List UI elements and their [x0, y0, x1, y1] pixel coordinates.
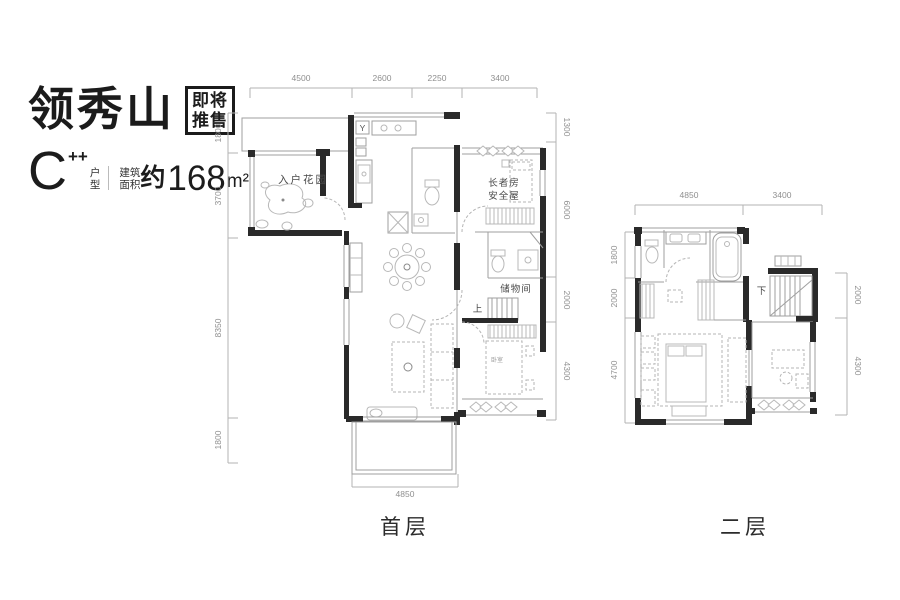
dim-label: 2250 [428, 73, 447, 83]
dim-label: 1800 [213, 430, 223, 449]
dim-label: 2000 [562, 291, 572, 310]
dim-label: 4300 [562, 362, 572, 381]
dim-label: 3400 [491, 73, 510, 83]
toilet [646, 247, 658, 263]
elder-room-label-1: 长者房 [488, 177, 520, 189]
dim-label: 4700 [609, 360, 619, 379]
wardrobe [640, 284, 654, 318]
storage-room: 储物间 [500, 283, 532, 295]
wardrobe [486, 208, 534, 224]
living-dining [344, 231, 458, 422]
floor1-dimensions-left: 1800 3700 8350 1800 [213, 113, 238, 463]
dim-label: 6000 [562, 201, 572, 220]
ac-platform [242, 118, 350, 151]
dim-label: 3700 [213, 186, 223, 205]
master-bedroom [636, 320, 752, 425]
stair-down-label: 下 [757, 286, 768, 297]
meter-symbol: Y [360, 123, 366, 133]
floor2-dimensions-left: 1800 2000 4700 [609, 232, 635, 423]
dim-label: 4850 [680, 190, 699, 200]
floor2-walls [634, 227, 752, 425]
garden-room: 入户花园 [248, 149, 345, 236]
dim-label: 3400 [773, 190, 792, 200]
floor2-name: 二层 [720, 516, 770, 539]
dining-table [395, 255, 419, 279]
door-arc [666, 258, 690, 282]
sofa [728, 338, 746, 402]
floorplan-drawing: 4500 2600 2250 3400 1800 3700 8350 1800 [0, 0, 900, 600]
core-wall [454, 145, 460, 425]
garden-label: 入户花园 [278, 173, 328, 186]
chair [780, 372, 792, 384]
floor1-name: 首层 [380, 516, 430, 539]
dim-label: 2000 [609, 288, 619, 307]
study-room [748, 322, 817, 414]
door-arc [462, 322, 484, 344]
bathroom-1f [412, 148, 455, 233]
floor1-plan: 4500 2600 2250 3400 1800 3700 8350 1800 [213, 73, 572, 539]
armchair [390, 314, 404, 328]
bench [672, 406, 706, 416]
stairs-2f: 下 [757, 256, 818, 322]
door-arc [462, 206, 488, 232]
sideboard [350, 243, 362, 292]
dim-label: 2000 [853, 286, 863, 305]
rug [392, 342, 424, 392]
elder-bathroom [475, 232, 543, 278]
sofa [431, 324, 453, 408]
dim-label: 8350 [213, 318, 223, 337]
wardrobe [698, 280, 714, 320]
floor1-dimensions-top: 4500 2600 2250 3400 [250, 73, 537, 98]
toilet [492, 256, 504, 272]
bathroom-2f [638, 230, 743, 282]
elder-room-label-2: 安全屋 [488, 190, 520, 202]
dim-label: 4500 [292, 73, 311, 83]
bedroom-1f: 卧室 [458, 322, 546, 417]
stair-up-label: 上 [473, 304, 484, 315]
armchair [407, 315, 426, 334]
floor2-dimensions-right: 2000 4300 [835, 273, 863, 415]
dim-label: 1800 [609, 245, 619, 264]
desk [772, 350, 804, 368]
garden-rock [265, 184, 305, 214]
dim-label: 1800 [213, 123, 223, 142]
floor1-dimensions-right: 1300 6000 2000 4300 [546, 113, 572, 420]
dim-label: 4300 [853, 357, 863, 376]
floorplan-poster: 领秀山 即将 推售 C ++ 户 型 建筑 面积 约 168 m² [0, 0, 900, 600]
wardrobe [488, 325, 536, 338]
kitchen: Y [348, 112, 460, 233]
dim-label: 2600 [373, 73, 392, 83]
storage-label: 储物间 [500, 283, 532, 295]
dim-label: 4850 [396, 489, 415, 499]
floor2-dimensions-top: 4850 3400 [635, 190, 822, 215]
bedroom-label: 卧室 [491, 356, 503, 364]
door-arc [323, 198, 345, 220]
balcony [352, 422, 456, 474]
floor2-plan: 4850 3400 1800 2000 4700 2000 4300 [609, 190, 863, 539]
dressing-hall [640, 280, 714, 320]
dim-label: 1300 [562, 118, 572, 137]
floor1-dimension-bottom: 4850 [352, 474, 458, 499]
rug [658, 334, 722, 406]
bed [486, 341, 522, 394]
toilet [425, 187, 439, 205]
